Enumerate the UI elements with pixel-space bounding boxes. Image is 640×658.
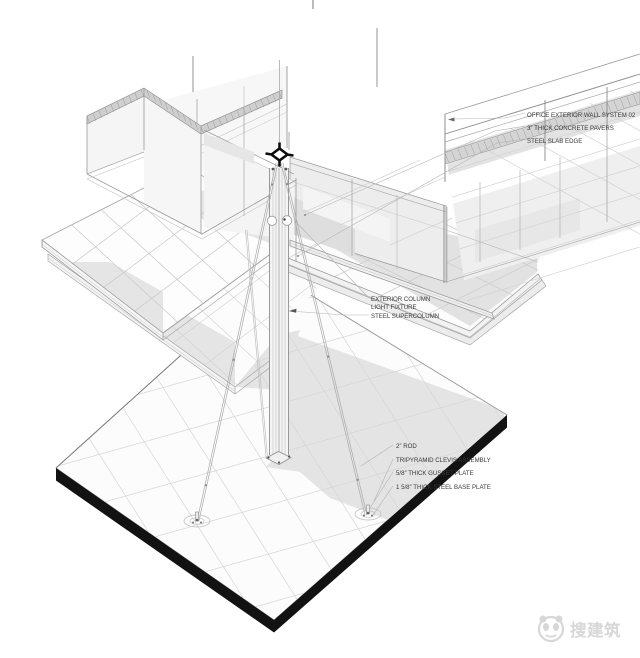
svg-text:2″ ROD: 2″ ROD (396, 443, 417, 450)
svg-text:OFFICE EXTERIOR WALL SYSTEM 02: OFFICE EXTERIOR WALL SYSTEM 02 (527, 112, 636, 119)
svg-text:STEEL SLAB EDGE: STEEL SLAB EDGE (527, 138, 582, 145)
svg-text:LIGHT FIXTURE: LIGHT FIXTURE (371, 304, 417, 311)
svg-text:EXTERIOR COLUMN: EXTERIOR COLUMN (371, 296, 430, 303)
svg-text:1 5/8″ THICK STEEL BASE PLATE: 1 5/8″ THICK STEEL BASE PLATE (396, 484, 491, 491)
svg-text:5/8″ THICK GUSSET PLATE: 5/8″ THICK GUSSET PLATE (396, 470, 474, 477)
svg-text:搜建筑: 搜建筑 (570, 620, 621, 640)
svg-text:STEEL SUPERCOLUMN: STEEL SUPERCOLUMN (371, 313, 439, 320)
svg-text:TRIPYRAMID CLEVIS ASSEMBLY: TRIPYRAMID CLEVIS ASSEMBLY (396, 457, 491, 464)
svg-text:3″ THICK CONCRETE PAVERS: 3″ THICK CONCRETE PAVERS (527, 125, 614, 132)
